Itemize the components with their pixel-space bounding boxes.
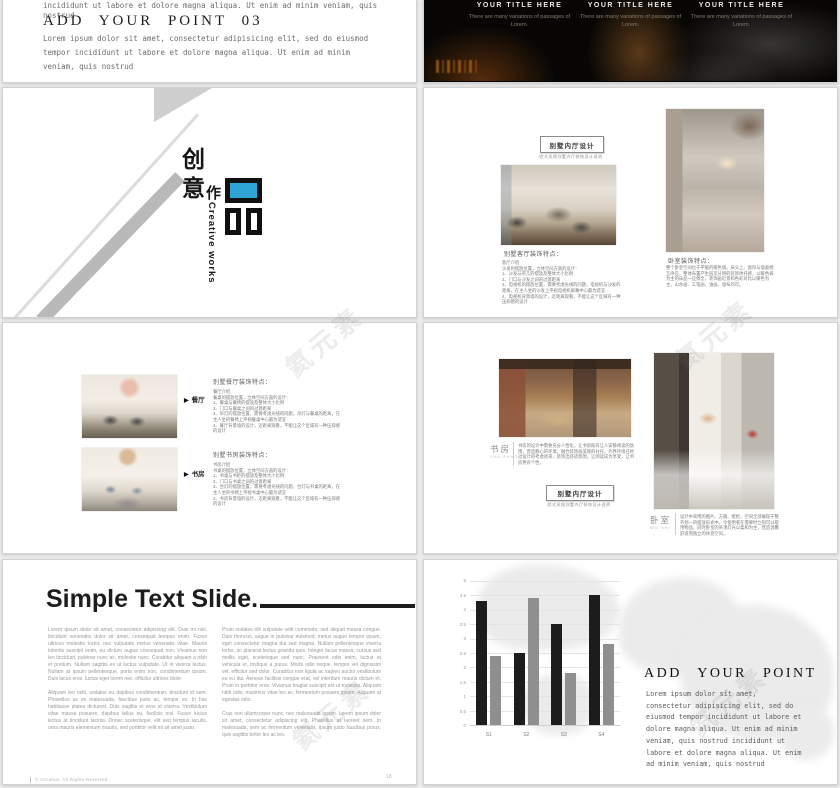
- y-tick-label: 1.5: [460, 680, 466, 685]
- slide-title: Simple Text Slide.: [46, 585, 258, 614]
- title-column: YOUR TITLE HERE There are many variation…: [686, 2, 797, 29]
- title-box-subtitle: 欧式风格别墅内厅装饰设计说明: [532, 502, 626, 508]
- title-column: YOUR TITLE HERE There are many variation…: [464, 2, 575, 29]
- y-tick-label: 2: [463, 665, 466, 670]
- title-box: 别墅内厅设计: [540, 136, 604, 153]
- y-tick-label: 0: [463, 723, 466, 728]
- y-tick-label: 2.5: [460, 651, 466, 656]
- vertical-divider: [675, 513, 676, 535]
- vertical-divider: [513, 442, 514, 466]
- bar-group-S1: S1: [476, 581, 501, 725]
- caption-living-room: 别墅客厅装饰特点：: [504, 249, 563, 258]
- title-rule-decoration: [260, 604, 415, 608]
- slide-thumbnail-add-your-point-03: incididunt ut labore et dolore magna ali…: [2, 0, 417, 83]
- footer-divider: [30, 777, 31, 783]
- slide-heading: ADD YOUR POINT: [644, 666, 817, 682]
- bar-series1-S3: [551, 624, 562, 725]
- living-room-photo: [501, 165, 616, 245]
- title-character: 作: [206, 182, 221, 203]
- title-box-subtitle: 欧式风格别墅内厅装饰设计说明: [526, 154, 616, 160]
- body-study: 书房介绍 书桌的摆放位置，立体空间方面的设计： 1、书桌与书柜的摆放及整体大小比…: [213, 462, 341, 507]
- y-tick-label: 4: [463, 607, 466, 612]
- slide-heading: ADD YOUR POINT 03: [43, 13, 263, 30]
- paragraph: Lorem ipsum dolor sit amet, consectetur …: [48, 627, 207, 683]
- pin-block: [246, 208, 262, 235]
- body-bedroom-room: 设计中采用的图片、方圆、壁柜，空间全部展现于整齐划一的摆放形式中，令使用者在需要…: [680, 514, 782, 536]
- heading-study: 别墅书房装饰特点：: [213, 450, 272, 459]
- column-body: There are many variations of passages of…: [464, 13, 575, 29]
- slide-thumbnail-creative-works: 创 意 作 Creative works: [2, 87, 417, 318]
- title-character: 创: [182, 148, 205, 171]
- subtitle-vertical: Creative works: [206, 202, 217, 284]
- slide-body-text: Lorem ipsum dolor sit amet, consectetur …: [646, 689, 804, 771]
- calligraphy-decoration: [436, 60, 480, 73]
- slide-thumbnail-bar-chart: 54.543.532.521.510.50 S1S2S3S4 ADD YOUR …: [423, 559, 838, 785]
- tag-label: 书房: [192, 471, 205, 478]
- gray-triangle-decoration: [154, 88, 212, 122]
- y-tick-label: 1: [463, 694, 466, 699]
- copyright-footer: © Vizuelus. All Rights Reserved: [35, 777, 108, 782]
- diagonal-band-decoration: [36, 172, 184, 318]
- paragraph: Proin sodales elit vulputate velit commo…: [222, 627, 381, 704]
- y-tick-label: 0.5: [460, 709, 466, 714]
- bar-chart: S1S2S3S4: [470, 581, 620, 725]
- slide-body-text: Lorem ipsum dolor sit amet, consectetur …: [43, 32, 381, 74]
- pin-block-blue: [225, 178, 262, 203]
- bar-series2-S4: [603, 644, 614, 725]
- y-tick-label: 3: [463, 636, 466, 641]
- text-column-1: Lorem ipsum dolor sit amet, consectetur …: [48, 627, 207, 739]
- body-study-room: 书房的设计中需要充分人性化，让书房既有让人安静阅读的氛围，营造静心的环境，融合装…: [518, 443, 634, 465]
- arrow-right-icon: ▶: [184, 472, 189, 478]
- bar-series1-S2: [514, 653, 525, 725]
- rustic-study-photo: [499, 359, 631, 437]
- bar-series2-S3: [565, 673, 576, 725]
- slide-thumbnail-villa-interior-2: 书房 SHU FANG 书房的设计中需要充分人性化，让书房既有让人安静阅读的氛围…: [423, 322, 838, 554]
- tag-label: 餐厅: [192, 397, 205, 404]
- y-tick-label: 4.5: [460, 593, 466, 598]
- cutoff-text-line: incididunt ut labore et dolore magna ali…: [43, 1, 377, 10]
- body-bedroom: 整个卧室空间位于平缓的暖色调，床头上、窗帘与墙面相互呼应，整体布置产生层次分明的…: [666, 265, 774, 287]
- column-title: YOUR TITLE HERE: [464, 2, 575, 9]
- arrow-right-icon: ▶: [184, 398, 189, 404]
- pin-character-blocks: [225, 178, 263, 235]
- bar-series1-S4: [589, 595, 600, 725]
- title-column: YOUR TITLE HERE There are many variation…: [575, 2, 686, 29]
- gridline: [470, 725, 620, 726]
- x-tick-label: S3: [551, 732, 576, 738]
- study-room-tag: ▶书房: [184, 468, 205, 478]
- bar-series1-S1: [476, 601, 487, 725]
- room-label-en: SHU FANG: [490, 454, 518, 459]
- hallway-photo: [654, 353, 774, 509]
- title-character: 意: [182, 177, 205, 200]
- slide-thumbnail-villa-interior-1: 别墅内厅设计 欧式风格别墅内厅装饰设计说明 别墅客厅装饰特点： 客厅介绍 沙发的…: [423, 87, 838, 318]
- room-label-en: WO SHI: [650, 525, 671, 530]
- page-number: 18: [386, 774, 392, 780]
- caption-bedroom: 卧室装饰特点：: [668, 256, 714, 265]
- y-tick-label: 3.5: [460, 622, 466, 627]
- bedroom-photo: [666, 109, 764, 252]
- chart-y-axis: 54.543.532.521.510.50: [448, 578, 466, 728]
- pin-block: [225, 208, 241, 235]
- column-body: There are many variations of passages of…: [686, 13, 797, 29]
- y-tick-label: 5: [463, 578, 466, 583]
- diagonal-line-decoration: [2, 113, 199, 318]
- body-living-room: 客厅介绍 沙发的摆放位置，立体空间方面的设计： 1、沙发与茶几的摆放及整体大小比…: [502, 260, 622, 305]
- x-tick-label: S1: [476, 732, 501, 738]
- column-body: There are many variations of passages of…: [575, 13, 686, 29]
- body-dining: 餐厅介绍 餐桌的摆放位置，立体空间方面的设计： 1、餐桌与餐椅的摆放及整体大小比…: [213, 389, 341, 434]
- bar-group-S3: S3: [551, 581, 576, 725]
- bar-group-S2: S2: [514, 581, 539, 725]
- dining-room-photo: [82, 375, 177, 438]
- study-room-photo: [82, 448, 177, 511]
- bar-series2-S2: [528, 598, 539, 725]
- text-column-2: Proin sodales elit vulputate velit commo…: [222, 627, 381, 746]
- x-tick-label: S2: [514, 732, 539, 738]
- column-title: YOUR TITLE HERE: [686, 2, 797, 9]
- x-tick-label: S4: [589, 732, 614, 738]
- bar-group-S4: S4: [589, 581, 614, 725]
- paragraph: Aliquam leo velit, sodales eu dapibus co…: [48, 690, 207, 732]
- title-box: 别墅内厅设计: [546, 485, 614, 501]
- paragraph: Cras non ullamcorper nunc, nec malesuada…: [222, 711, 381, 739]
- slide-thumbnail-dark-title-columns: YOUR TITLE HERE There are many variation…: [423, 0, 838, 83]
- heading-dining: 别墅餐厅装饰特点：: [213, 377, 272, 386]
- title-columns: YOUR TITLE HERE There are many variation…: [424, 2, 837, 29]
- slide-thumbnail-dining-study: ▶餐厅 别墅餐厅装饰特点： 餐厅介绍 餐桌的摆放位置，立体空间方面的设计： 1、…: [2, 322, 417, 554]
- bar-series2-S1: [490, 656, 501, 725]
- column-title: YOUR TITLE HERE: [575, 2, 686, 9]
- dining-room-tag: ▶餐厅: [184, 394, 205, 404]
- slide-thumbnail-simple-text: Simple Text Slide. Lorem ipsum dolor sit…: [2, 559, 417, 785]
